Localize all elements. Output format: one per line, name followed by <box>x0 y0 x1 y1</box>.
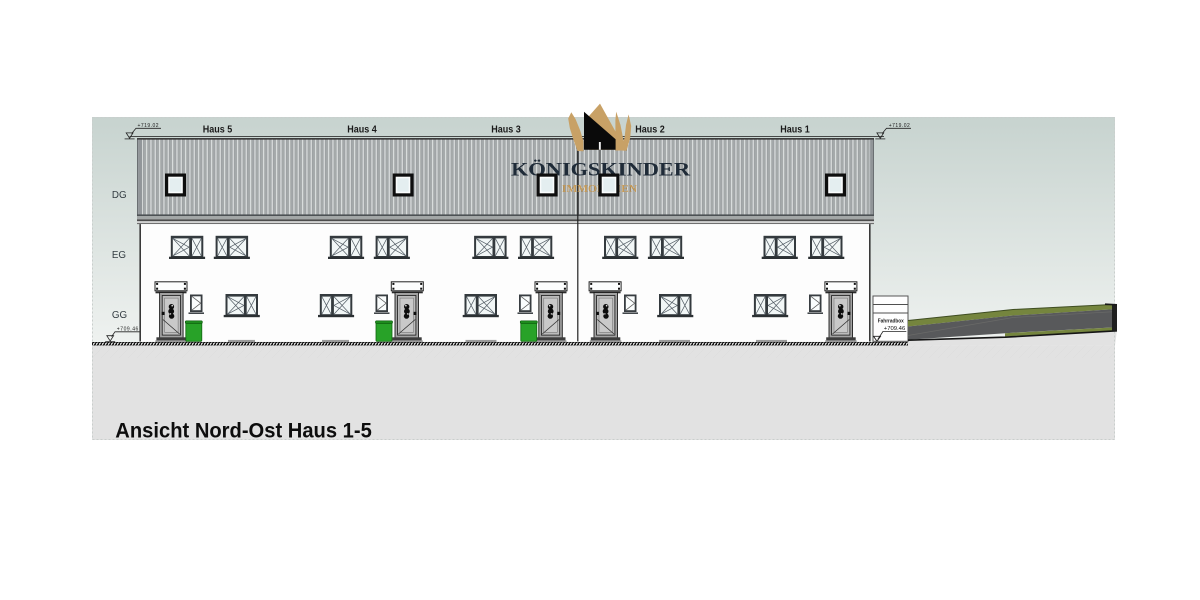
svg-text:DG: DG <box>112 190 127 201</box>
svg-text:Fahrradbox: Fahrradbox <box>878 319 904 325</box>
svg-text:+709.46: +709.46 <box>117 327 139 333</box>
svg-text:Ansicht Nord-Ost Haus 1-5: Ansicht Nord-Ost Haus 1-5 <box>115 419 372 443</box>
svg-text:Haus 5: Haus 5 <box>203 124 233 135</box>
svg-text:GG: GG <box>112 310 127 321</box>
svg-text:+719.02: +719.02 <box>889 123 910 129</box>
svg-text:Haus 1: Haus 1 <box>780 124 810 135</box>
svg-text:Haus 4: Haus 4 <box>347 124 377 135</box>
svg-text:Haus 3: Haus 3 <box>491 124 521 135</box>
svg-text:+719.02: +719.02 <box>138 123 159 129</box>
svg-text:EG: EG <box>112 250 126 261</box>
svg-text:Haus 2: Haus 2 <box>635 124 665 135</box>
